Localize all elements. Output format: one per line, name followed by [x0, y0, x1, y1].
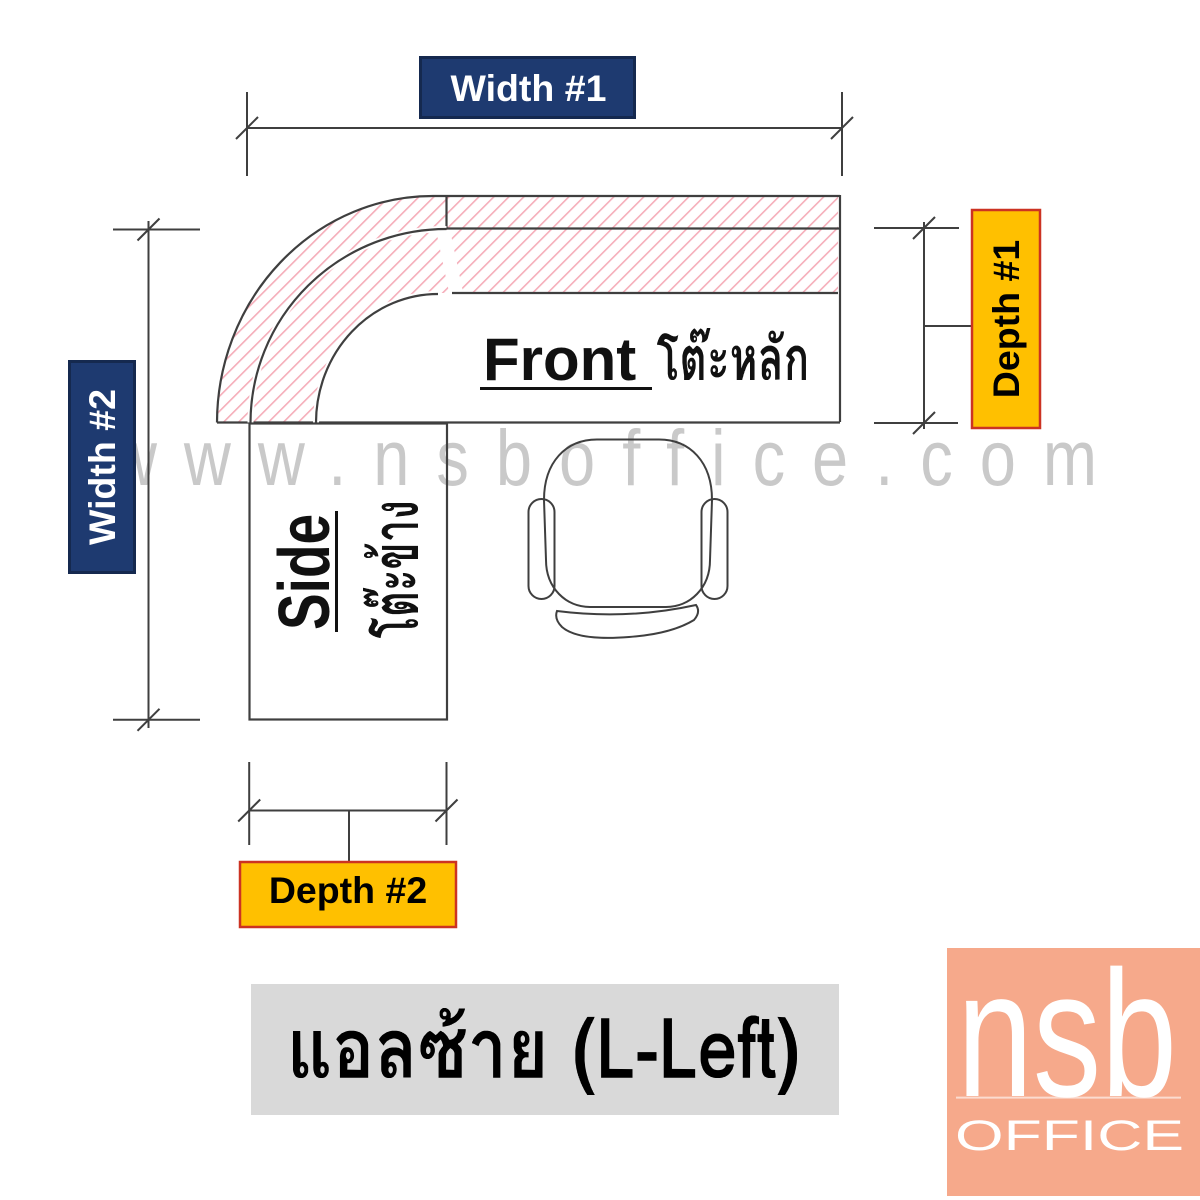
svg-text:Depth #2: Depth #2 [269, 869, 427, 911]
svg-text:Front: Front [483, 326, 636, 393]
svg-text:Width #2: Width #2 [81, 389, 123, 545]
svg-text:nsb: nsb [957, 934, 1177, 1135]
svg-text:OFFICE: OFFICE [955, 1112, 1184, 1160]
svg-text:Side: Side [264, 514, 345, 630]
svg-text:Width #1: Width #1 [451, 67, 607, 109]
svg-text:Depth #1: Depth #1 [985, 240, 1027, 398]
